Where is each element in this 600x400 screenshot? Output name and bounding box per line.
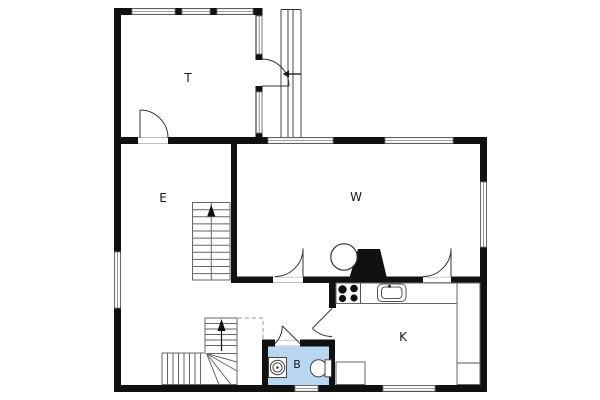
cabinet — [336, 362, 365, 385]
entrance-porch-deck — [281, 10, 301, 138]
door-kitchen — [312, 309, 332, 337]
toilet-icon — [310, 360, 331, 377]
wood-stove-icon — [331, 244, 357, 270]
door-w-right — [423, 249, 451, 277]
room-label-w: W — [350, 190, 362, 204]
entrance-arrow-icon — [283, 70, 301, 77]
room-label-e: E — [159, 191, 167, 205]
wall-left — [114, 8, 121, 392]
loft-hatch-dashed-outline — [238, 318, 263, 342]
staircase-lower — [162, 318, 237, 385]
kitchen-right-counter — [457, 283, 480, 385]
room-label-b: B — [293, 358, 301, 371]
room-label-k: K — [399, 330, 408, 344]
wall-kitchen-stub — [329, 277, 336, 309]
door-entrance — [262, 59, 289, 86]
sink-icon — [378, 284, 407, 302]
floor-plan: T E W K B — [0, 0, 600, 400]
room-label-t: T — [183, 71, 192, 85]
wall-bath-left — [262, 340, 268, 386]
walls — [114, 8, 487, 392]
door-w-left — [275, 249, 303, 277]
wall-e-w-divider — [231, 140, 237, 283]
windows — [115, 9, 487, 392]
wall-right — [480, 137, 487, 392]
washing-machine-icon — [269, 358, 287, 378]
floor-plan-canvas: T E W K B — [0, 0, 600, 400]
staircase-upper — [193, 203, 231, 281]
opening-entrance — [255, 60, 263, 86]
door-t-interior — [140, 110, 168, 138]
